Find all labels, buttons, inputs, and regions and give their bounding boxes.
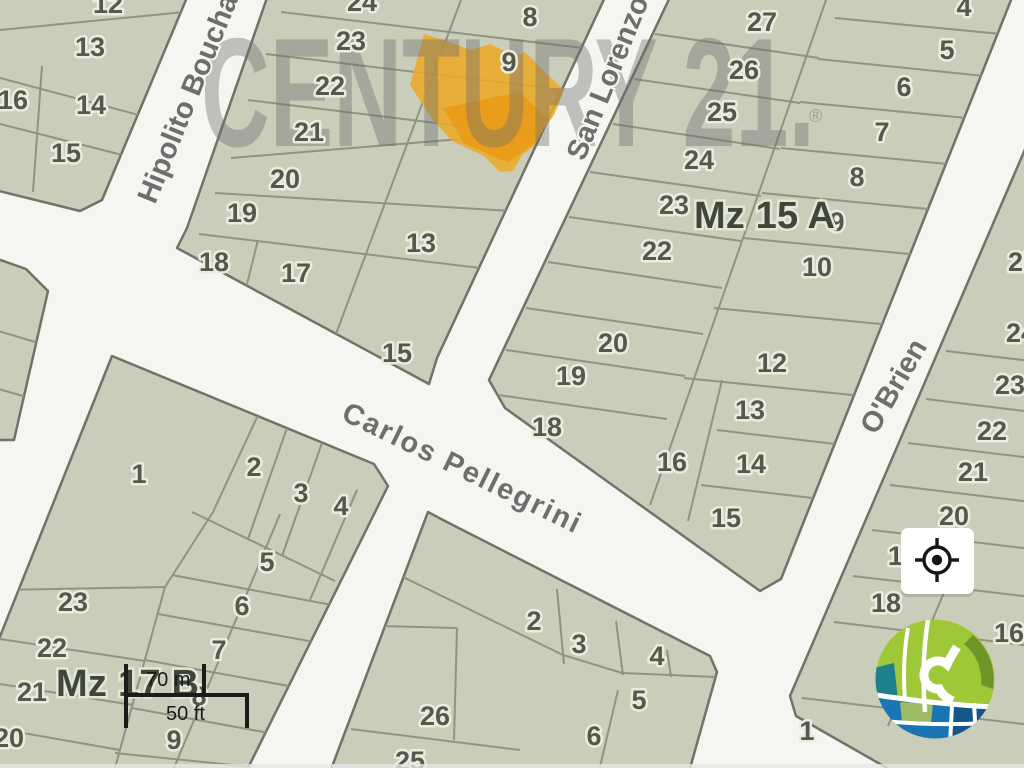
- svg-text:23: 23: [336, 26, 366, 56]
- svg-text:24: 24: [684, 145, 714, 175]
- svg-text:1: 1: [799, 716, 814, 746]
- svg-text:7: 7: [211, 635, 226, 665]
- svg-text:Mz 15 A: Mz 15 A: [694, 195, 835, 237]
- svg-text:23: 23: [659, 190, 689, 220]
- svg-text:4: 4: [956, 0, 971, 22]
- svg-text:70 m: 70 m: [146, 669, 190, 691]
- svg-text:17: 17: [281, 258, 311, 288]
- svg-text:6: 6: [234, 591, 249, 621]
- svg-text:18: 18: [871, 588, 901, 618]
- svg-text:20: 20: [270, 164, 300, 194]
- svg-text:22: 22: [315, 71, 345, 101]
- svg-text:21: 21: [17, 677, 47, 707]
- svg-text:3: 3: [571, 629, 586, 659]
- svg-text:7: 7: [874, 117, 889, 147]
- svg-text:5: 5: [259, 547, 274, 577]
- svg-text:5: 5: [939, 35, 954, 65]
- svg-text:2: 2: [246, 452, 261, 482]
- svg-text:2: 2: [526, 606, 541, 636]
- svg-text:22: 22: [37, 633, 67, 663]
- svg-text:13: 13: [406, 228, 436, 258]
- svg-text:19: 19: [227, 198, 257, 228]
- svg-text:10: 10: [802, 252, 832, 282]
- svg-text:12: 12: [757, 348, 787, 378]
- svg-text:20: 20: [939, 501, 969, 531]
- svg-text:4: 4: [649, 641, 664, 671]
- svg-text:13: 13: [735, 395, 765, 425]
- svg-text:6: 6: [896, 72, 911, 102]
- svg-text:23: 23: [995, 370, 1024, 400]
- svg-text:22: 22: [642, 236, 672, 266]
- svg-text:16: 16: [0, 85, 28, 115]
- svg-text:12: 12: [93, 0, 123, 19]
- svg-text:15: 15: [51, 138, 81, 168]
- svg-text:13: 13: [75, 32, 105, 62]
- svg-text:27: 27: [747, 7, 777, 37]
- svg-text:14: 14: [76, 90, 106, 120]
- svg-text:8: 8: [849, 162, 864, 192]
- svg-text:25: 25: [1008, 247, 1024, 277]
- svg-text:9: 9: [501, 47, 516, 77]
- svg-text:5: 5: [631, 685, 646, 715]
- svg-text:18: 18: [199, 247, 229, 277]
- svg-text:15: 15: [382, 338, 412, 368]
- svg-text:15: 15: [711, 503, 741, 533]
- svg-text:16: 16: [657, 447, 687, 477]
- svg-text:24: 24: [347, 0, 377, 17]
- svg-text:19: 19: [556, 361, 586, 391]
- svg-text:®: ®: [809, 106, 822, 126]
- svg-text:26: 26: [420, 701, 450, 731]
- svg-text:1: 1: [131, 459, 146, 489]
- svg-text:26: 26: [729, 55, 759, 85]
- svg-text:50 ft: 50 ft: [166, 703, 205, 725]
- svg-text:20: 20: [0, 723, 24, 753]
- svg-text:8: 8: [522, 2, 537, 32]
- svg-text:3: 3: [293, 478, 308, 508]
- svg-text:16: 16: [994, 618, 1024, 648]
- svg-text:6: 6: [586, 721, 601, 751]
- svg-text:18: 18: [532, 412, 562, 442]
- svg-text:9: 9: [166, 725, 181, 755]
- svg-text:24: 24: [1006, 318, 1024, 348]
- svg-text:CENTURY 21.: CENTURY 21.: [201, 6, 815, 179]
- svg-text:20: 20: [598, 328, 628, 358]
- svg-text:23: 23: [58, 587, 88, 617]
- svg-text:21: 21: [294, 117, 324, 147]
- svg-text:14: 14: [736, 449, 766, 479]
- svg-text:25: 25: [707, 97, 737, 127]
- svg-text:22: 22: [977, 416, 1007, 446]
- svg-text:21: 21: [958, 457, 988, 487]
- svg-text:4: 4: [333, 491, 348, 521]
